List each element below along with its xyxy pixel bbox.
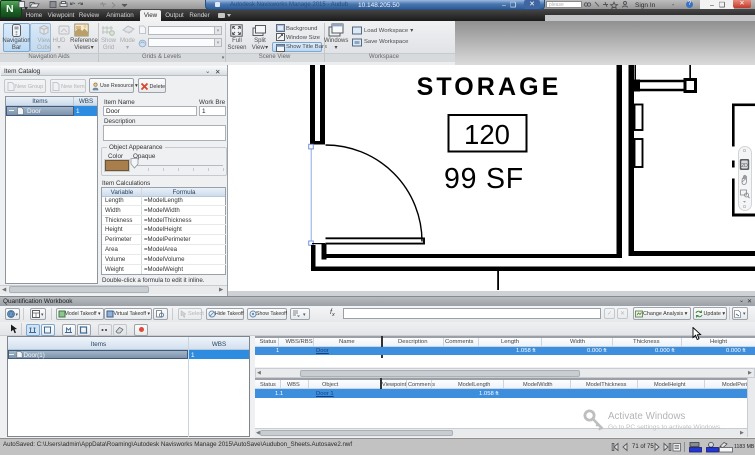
svg-text:STORAGE: STORAGE xyxy=(417,73,562,101)
svg-text:99 SF: 99 SF xyxy=(444,163,524,195)
svg-text:120: 120 xyxy=(464,119,510,150)
svg-text:2D: 2D xyxy=(741,163,748,169)
